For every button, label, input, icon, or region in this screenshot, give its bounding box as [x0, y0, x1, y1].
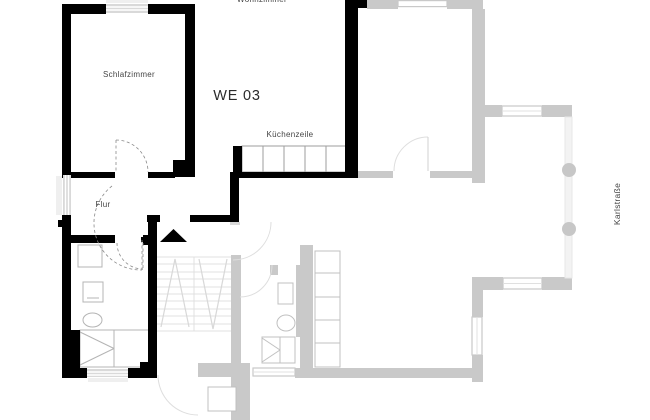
- room-label-flur: Flur: [73, 200, 133, 209]
- balcony-railing: [565, 117, 572, 278]
- unit-label: WE 03: [197, 88, 277, 104]
- stairs: [157, 257, 231, 331]
- shower: [208, 387, 236, 411]
- unit-windows: [63, 4, 148, 377]
- sink: [83, 282, 103, 302]
- balcony-column: [562, 222, 576, 236]
- room-label-schlafzimmer: Schlafzimmer: [89, 70, 169, 79]
- kitchen-counter: [242, 146, 346, 172]
- floorplan-drawing: [0, 0, 650, 420]
- toilet: [83, 313, 102, 327]
- entrance-arrow: [160, 229, 187, 242]
- neighbor-walls: [198, 0, 572, 420]
- room-label-kuechenzeile: Küchenzeile: [250, 130, 330, 139]
- street-label: Karlstraße: [612, 164, 622, 244]
- cabinet-column: [315, 251, 340, 367]
- bathroom-fixtures: [78, 245, 150, 367]
- floorplan-canvas: Wohnzimmer Schlafzimmer WE 03 Küchenzeil…: [0, 0, 650, 420]
- balcony: [562, 117, 576, 278]
- bathtub: [80, 330, 150, 367]
- room-label-wohnzimmer: Wohnzimmer: [222, 0, 302, 4]
- shower: [78, 245, 102, 267]
- balcony-column: [562, 163, 576, 177]
- sink: [278, 283, 293, 304]
- toilet: [277, 315, 295, 331]
